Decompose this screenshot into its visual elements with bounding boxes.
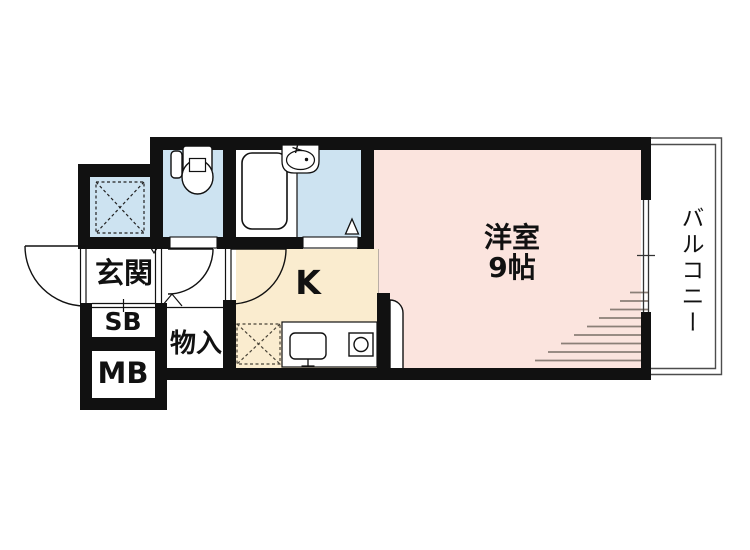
floorplan: 玄関 SB MB 物入 K 洋室 9帖 バルコニー: [0, 0, 750, 550]
meter-box-label: MB: [93, 358, 153, 388]
bathtub-icon: [242, 153, 287, 229]
kitchen-counter: [282, 322, 377, 367]
entrance-door-swing-icon: [25, 246, 85, 306]
storage-label: 物入: [166, 331, 226, 358]
entrance-label: 玄関: [86, 258, 162, 288]
balcony-label: バルコニー: [670, 186, 702, 356]
washbasin-icon: [282, 145, 319, 173]
kitchen-label: K: [288, 266, 328, 301]
shoe-box-label: SB: [93, 309, 153, 335]
toilet-door: [170, 237, 217, 248]
bath-door: [303, 237, 358, 248]
room-size-label: 9帖: [452, 253, 572, 282]
room-door-icon: [390, 300, 403, 368]
hall-door-swing-icon: [168, 249, 213, 294]
western-room-label: 洋室: [452, 223, 572, 252]
stove-icon: [349, 333, 373, 356]
